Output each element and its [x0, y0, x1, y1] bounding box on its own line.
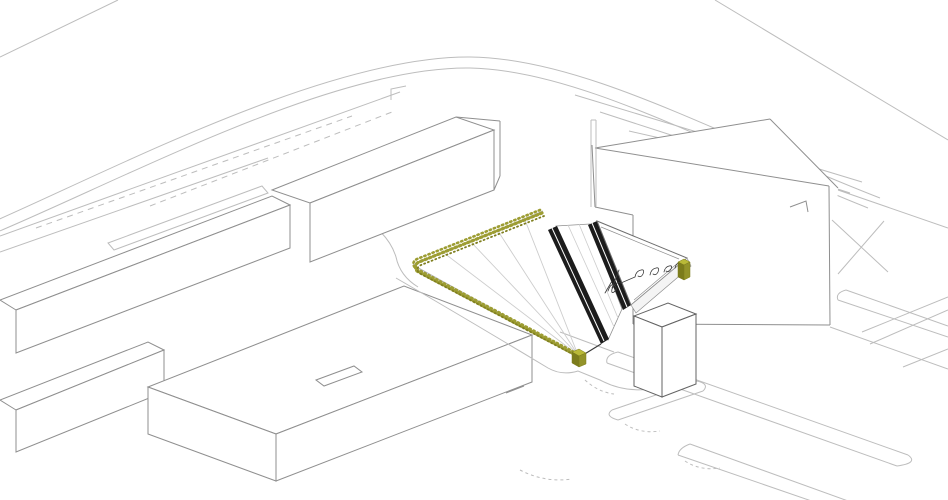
site-plan-drawing	[0, 0, 948, 500]
corner-diagonal-topright	[715, 0, 948, 140]
tower-box	[634, 303, 696, 397]
corner-diagonal-topleft	[0, 0, 118, 57]
tower-box-left-face	[634, 316, 662, 397]
tower-box-right-face	[662, 314, 696, 397]
left-building-blocks	[0, 117, 532, 481]
marker-right-front-face	[678, 262, 684, 280]
sketch-canvas	[0, 0, 948, 500]
marker-right-side-face	[684, 262, 690, 280]
